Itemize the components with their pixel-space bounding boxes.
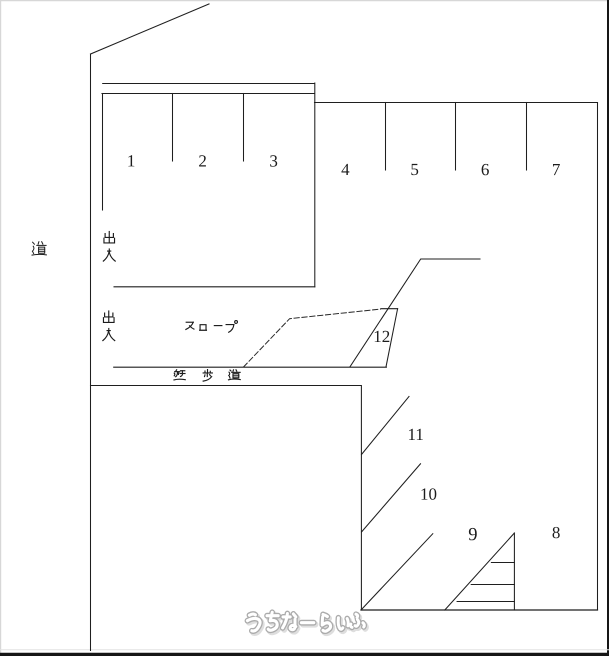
svg-text:12: 12	[373, 327, 390, 346]
svg-text:9: 9	[468, 525, 477, 545]
svg-text:11: 11	[408, 425, 424, 444]
svg-text:5: 5	[410, 160, 419, 179]
svg-text:1: 1	[127, 151, 136, 170]
svg-text:10: 10	[420, 485, 437, 504]
svg-text:6: 6	[481, 160, 490, 179]
svg-text:4: 4	[341, 160, 350, 179]
svg-text:3: 3	[269, 151, 278, 170]
svg-text:7: 7	[552, 160, 561, 179]
svg-text:2: 2	[198, 151, 207, 170]
svg-text:8: 8	[552, 523, 561, 542]
